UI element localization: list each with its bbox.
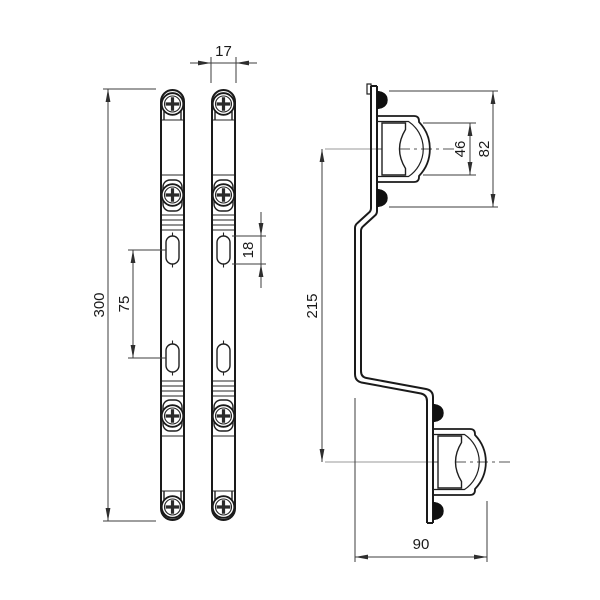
dimension-label-90: 90: [413, 536, 430, 553]
technical-drawing-canvas: 17 300 75 18 46 82 215: [0, 0, 600, 600]
front-bar-right: [212, 90, 235, 520]
dimension-bar-width: 17: [190, 43, 257, 83]
dimension-bracket-depth: 90: [355, 398, 487, 562]
dimension-slot-length: 18: [232, 212, 266, 288]
dimension-label-215: 215: [304, 293, 321, 318]
dimension-label-75: 75: [116, 296, 133, 313]
dimension-label-82: 82: [476, 141, 493, 158]
dimension-label-300: 300: [91, 292, 108, 317]
dimension-label-18: 18: [240, 242, 257, 259]
front-bar-left: [161, 90, 184, 520]
dimension-slot-spacing: 75: [116, 250, 166, 358]
technical-drawing-page: 17 300 75 18 46 82 215: [0, 0, 600, 600]
dimension-clamp-center-spacing: 215: [304, 149, 324, 462]
dimension-label-46: 46: [452, 141, 469, 158]
dimension-label-17: 17: [215, 43, 232, 60]
front-view: [161, 90, 235, 520]
